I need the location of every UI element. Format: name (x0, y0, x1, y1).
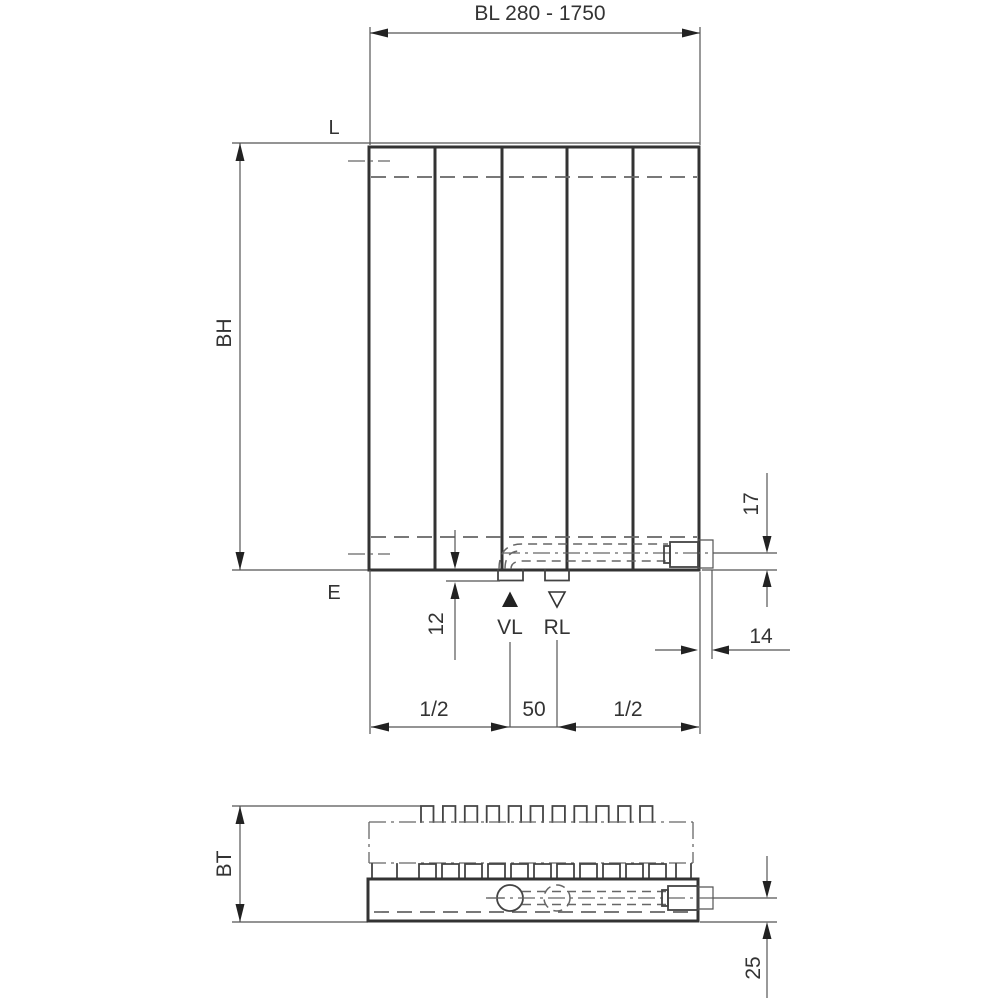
pipe-mid-hidden (505, 551, 520, 569)
dim-12-label: 12 (425, 612, 448, 635)
dim-height: BH (213, 143, 245, 570)
dim-25-label: 25 (742, 956, 765, 979)
radiator-outline (369, 147, 699, 570)
fitting-body (670, 542, 698, 567)
panel-body-outline (368, 879, 698, 921)
return-arrow-icon (549, 592, 565, 607)
arrowhead-down (236, 552, 245, 570)
arrowhead (558, 723, 576, 732)
arrowhead (491, 723, 509, 732)
arrowhead-up (451, 582, 460, 599)
arrowhead-down (236, 904, 245, 922)
panel-dividers (435, 147, 633, 570)
arrowhead-up (763, 922, 772, 939)
dim-overall-length: BL 280 - 1750 (370, 2, 700, 145)
supply-label: VL (497, 616, 523, 639)
supply-arrow-icon (502, 592, 518, 608)
pipe-outer-wall-hidden (499, 544, 668, 569)
arrowhead (371, 723, 389, 732)
dim-half-left-label: 1/2 (419, 698, 448, 721)
top-reference-label: L (328, 117, 339, 139)
supply-stub (498, 570, 523, 581)
dim-14-label: 14 (749, 625, 773, 648)
arrowhead (681, 723, 699, 732)
dim-14: 14 (655, 570, 790, 734)
dim-half-right-label: 1/2 (613, 698, 642, 721)
arrowhead-down (763, 881, 772, 898)
dim-chain-bottom: 1/2 50 1/2 (370, 570, 699, 734)
arrowhead-down (763, 536, 772, 553)
dim-depth: BT (213, 806, 421, 922)
bottom-reference-label: E (327, 582, 340, 604)
arrowhead-down (451, 552, 460, 569)
height-label: BH (213, 318, 236, 347)
arrowhead-up (763, 570, 772, 587)
depth-label: BT (213, 850, 236, 877)
front-view: BL 280 - 1750 L E BH (213, 2, 790, 734)
fin-row-top (421, 806, 653, 822)
arrowhead-up (236, 806, 245, 824)
dim-50-label: 50 (522, 698, 545, 721)
return-stub (545, 570, 569, 581)
arrowhead-left (370, 29, 388, 38)
pipe-inner-wall-hidden (511, 561, 668, 569)
radiator-dimension-drawing: BL 280 - 1750 L E BH (0, 0, 1000, 1000)
arrowhead-right (681, 646, 698, 655)
bottom-view: BT 25 (213, 806, 777, 998)
arrowhead-left (712, 646, 729, 655)
fin-row-bottom (419, 864, 666, 879)
return-label: RL (544, 616, 571, 639)
overall-length-label: BL 280 - 1750 (474, 2, 605, 25)
drawing-canvas: BL 280 - 1750 L E BH (0, 0, 1000, 1000)
dim-25: 25 (700, 856, 777, 998)
dim-17-label: 17 (740, 492, 763, 515)
arrowhead-right (682, 29, 700, 38)
arrowhead-up (236, 143, 245, 161)
